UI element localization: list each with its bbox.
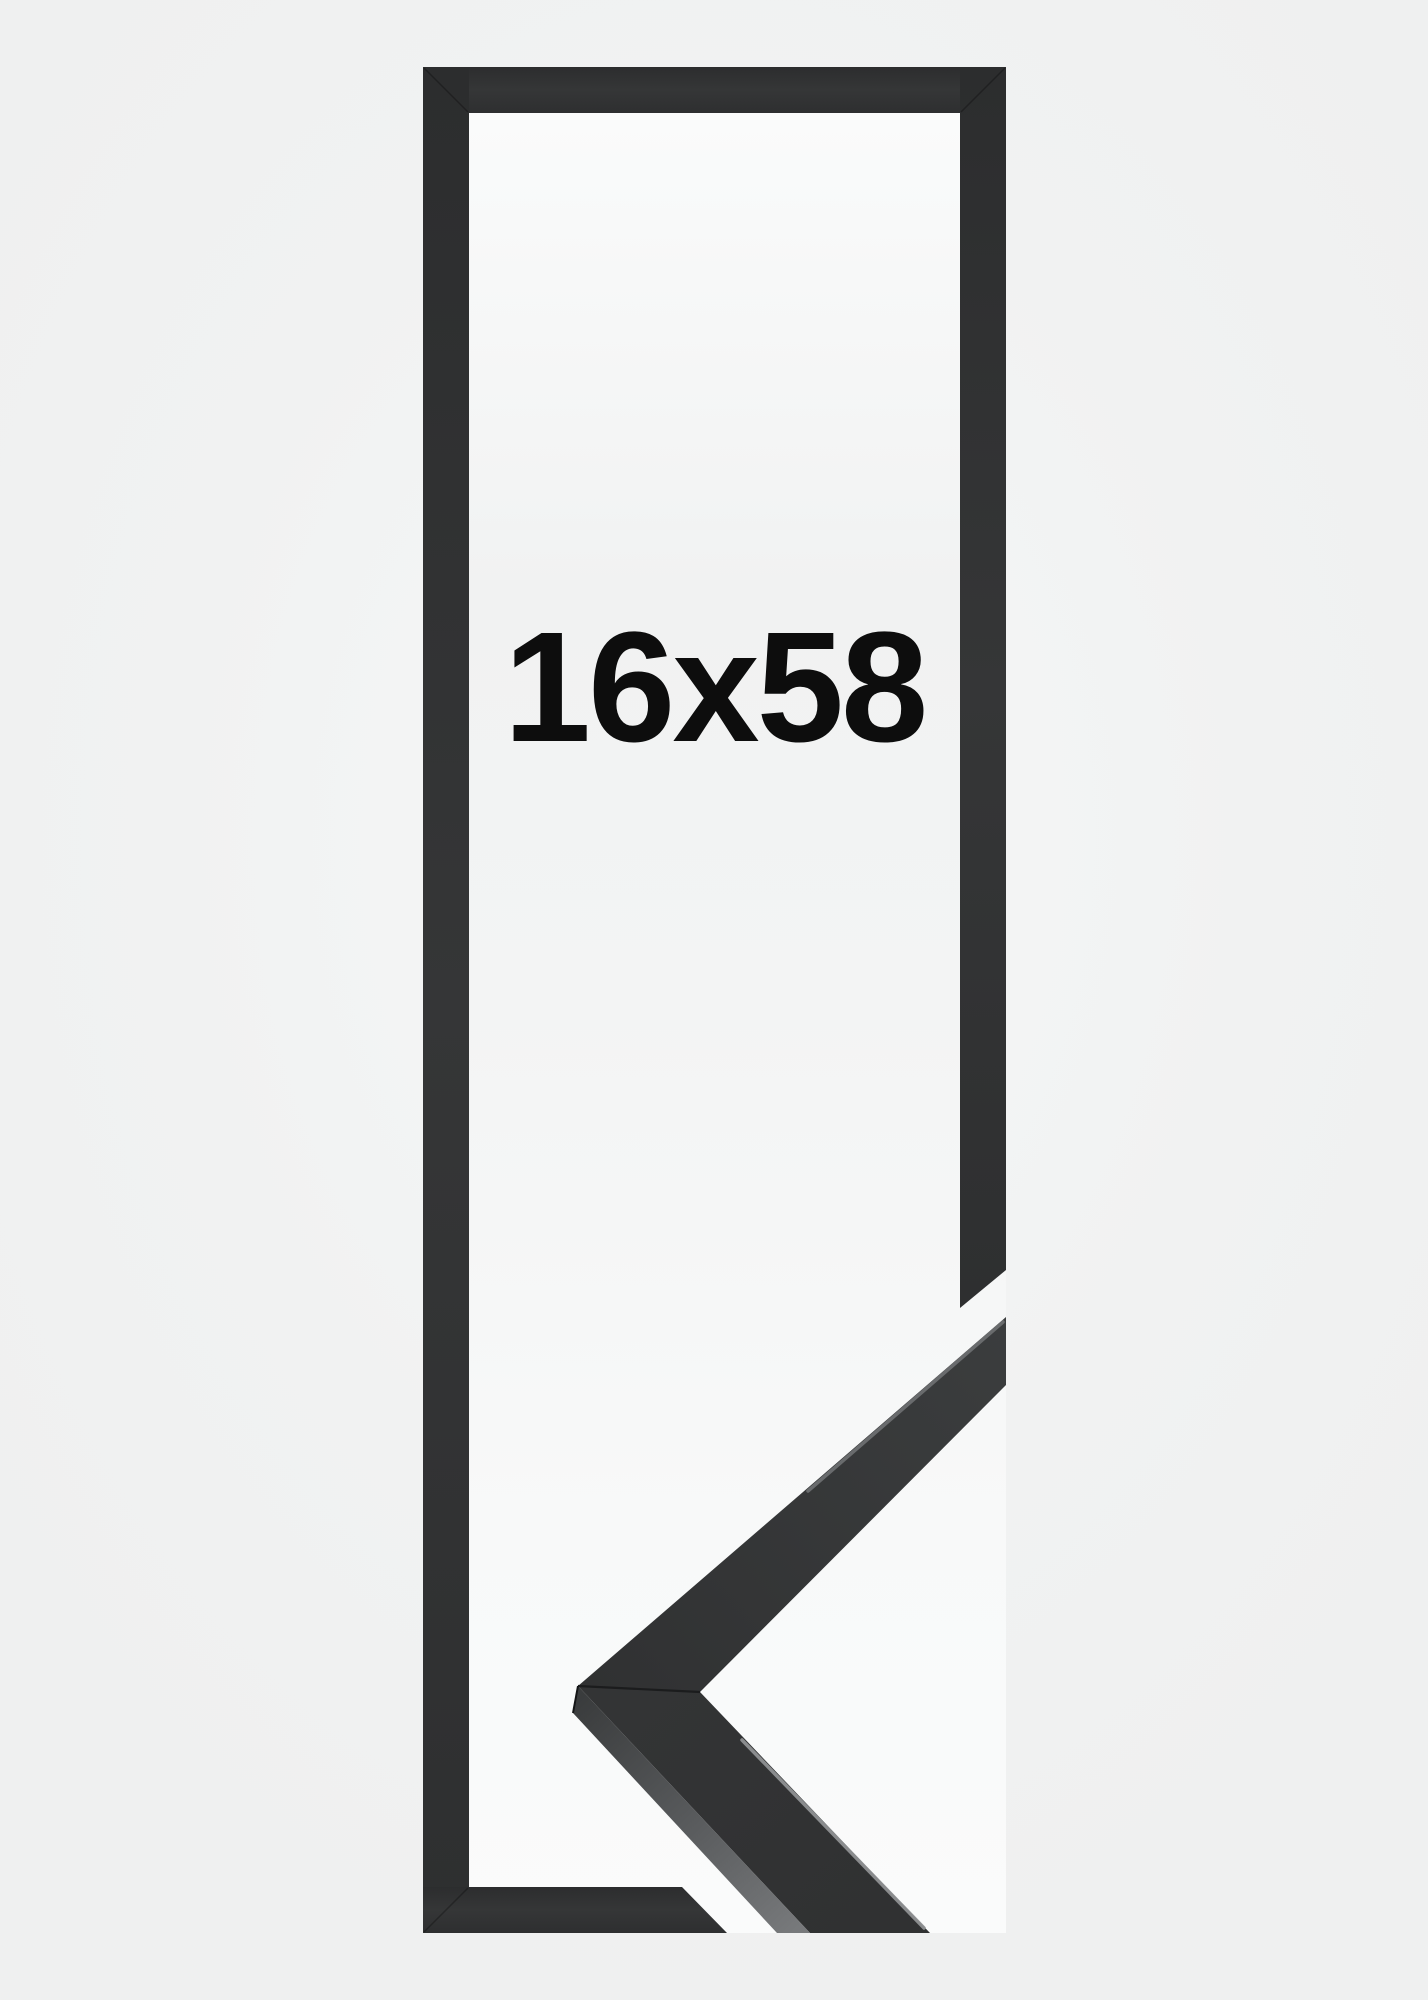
- frame-left-bar: [423, 67, 469, 1933]
- frame-product-graphic: [0, 0, 1428, 2000]
- frame-top-bar: [423, 67, 1006, 113]
- frame-bottom-bar: [423, 1887, 727, 1933]
- size-label: 16x58: [423, 603, 1006, 773]
- product-image-page: 16x58: [0, 0, 1428, 2000]
